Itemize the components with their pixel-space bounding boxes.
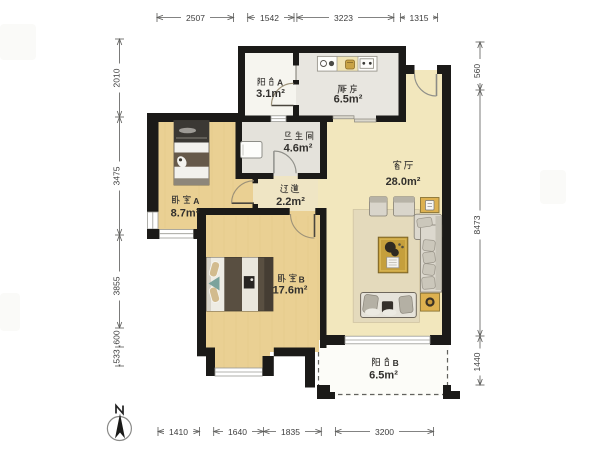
svg-text:28.0m²: 28.0m² xyxy=(386,176,421,188)
svg-text:6.5m²: 6.5m² xyxy=(334,94,363,106)
svg-text:3223: 3223 xyxy=(334,13,353,23)
svg-text:1835: 1835 xyxy=(281,427,300,437)
svg-text:8473: 8473 xyxy=(472,215,482,234)
svg-text:4.6m²: 4.6m² xyxy=(284,143,313,155)
svg-text:2507: 2507 xyxy=(186,13,205,23)
svg-text:3200: 3200 xyxy=(375,427,394,437)
svg-text:1542: 1542 xyxy=(260,13,279,23)
svg-text:3475: 3475 xyxy=(112,166,122,185)
svg-text:6.5m²: 6.5m² xyxy=(369,370,398,382)
svg-text:2010: 2010 xyxy=(112,68,122,87)
svg-text:1640: 1640 xyxy=(228,427,247,437)
svg-text:2.2m²: 2.2m² xyxy=(276,196,305,208)
svg-text:17.6m²: 17.6m² xyxy=(273,285,308,297)
svg-text:8.7m²: 8.7m² xyxy=(171,208,200,220)
svg-text:B: B xyxy=(393,358,399,368)
svg-text:3855: 3855 xyxy=(112,276,122,295)
svg-text:533: 533 xyxy=(112,349,122,363)
svg-text:560: 560 xyxy=(472,64,482,78)
svg-text:600: 600 xyxy=(112,330,122,344)
svg-text:A: A xyxy=(193,196,199,206)
svg-text:A: A xyxy=(277,78,283,88)
svg-text:3.1m²: 3.1m² xyxy=(256,88,285,100)
svg-text:1410: 1410 xyxy=(169,427,188,437)
svg-text:1440: 1440 xyxy=(472,352,482,371)
svg-text:B: B xyxy=(299,275,305,285)
svg-text:1315: 1315 xyxy=(410,13,429,23)
